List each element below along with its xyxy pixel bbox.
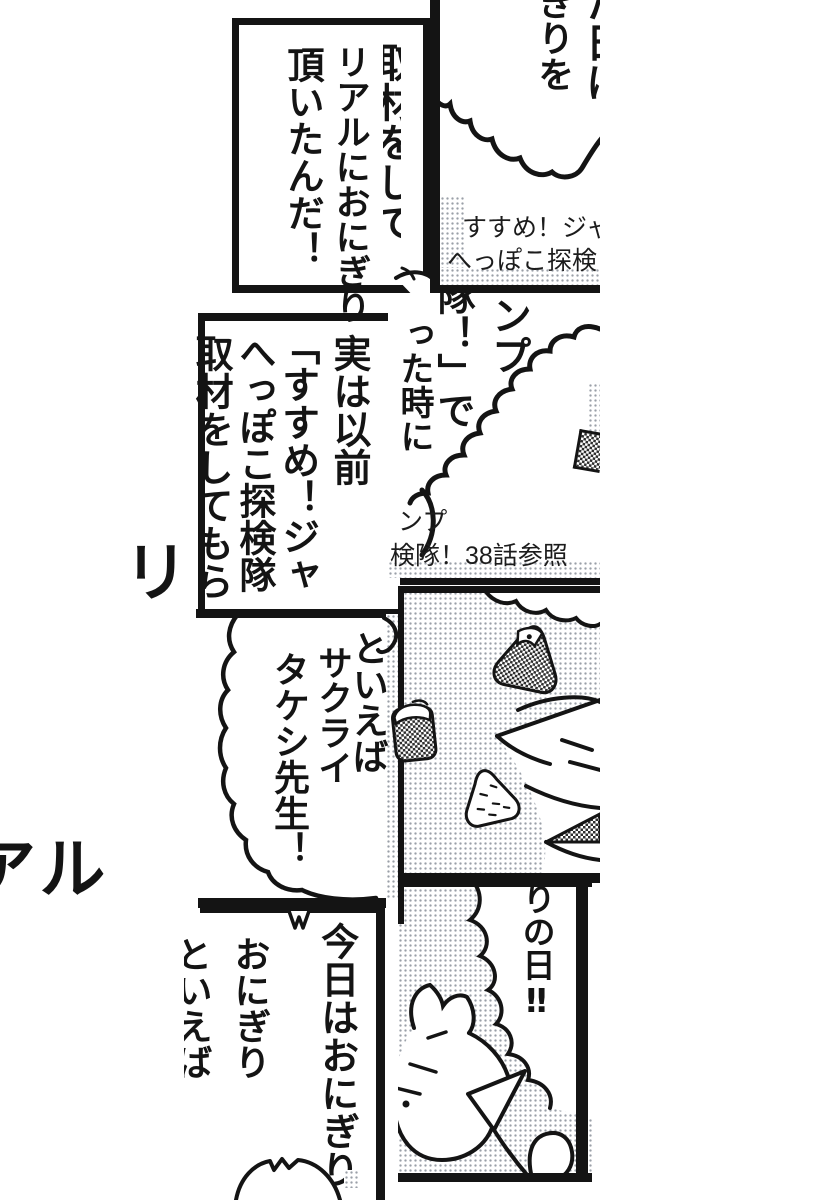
- onigiri-roll-icon: [386, 698, 440, 766]
- speech-column: へっぽこ探検隊: [234, 334, 273, 593]
- halftone-patch: [344, 1170, 360, 1188]
- panel-mid-right: ンプ 隊！」で った時に ンプ 検隊！38話参照: [388, 293, 600, 585]
- speech-column: 頂いたんだ！: [284, 46, 321, 268]
- speech-column: 実は以前: [330, 334, 368, 486]
- speech-column: といえば: [348, 630, 386, 774]
- panel-bottom-right: りの日‼: [398, 878, 592, 1182]
- background-title-fragment-bottom: アル: [0, 816, 109, 912]
- panel-onigiri-border-top: [398, 586, 600, 593]
- panel-bottom-right-border-left-stub: [398, 878, 404, 924]
- panel-bottom-right-border-top: [398, 878, 592, 887]
- speech-column: た日に: [573, 0, 600, 102]
- panel-top-left-border-left: [232, 18, 239, 293]
- speech-column: タケシ先生！: [270, 651, 306, 867]
- speech-column: 「すすめ！ジャ: [278, 327, 317, 593]
- onigiri-sesame-icon: [457, 765, 521, 829]
- manga-page: リ アル 取材をして リアルにおにぎり 頂いたんだ！ ぎりを た日に すすめ！ジ…: [0, 0, 820, 1200]
- clipped-speech-column: た日に: [571, 0, 600, 190]
- panel-bottom-right-border-right: [576, 878, 588, 1182]
- speech-column: ぎりを: [534, 0, 569, 92]
- speech-column: 隊！」で: [437, 293, 468, 429]
- panel-top-left-border-top: [232, 18, 425, 25]
- bottom-right-panel-art: [398, 878, 592, 1182]
- speech-column: ンプ: [486, 295, 530, 375]
- reference-caption-line2: 検隊！38話参照: [390, 536, 568, 572]
- onigiri-dark-icon: [492, 620, 566, 695]
- clipped-speech-column: といえば: [184, 936, 213, 1096]
- reference-caption-line1: ンプ: [398, 502, 447, 538]
- clipped-speech-column: 取材をして: [383, 42, 401, 257]
- reference-caption-line2: へっぽこ探検: [447, 241, 597, 277]
- speech-column: 今日はおにぎり: [317, 922, 356, 1188]
- speech-column: リアルにおにぎり: [332, 44, 367, 324]
- panel-bottom-right-border-bottom: [398, 1173, 592, 1182]
- panel-bottom-left-border-right: [376, 905, 385, 1200]
- speech-column: りの日‼: [520, 882, 553, 1020]
- speech-column: った時に: [396, 317, 432, 453]
- speech-column: といえば: [184, 936, 209, 1080]
- panel-mid-right-border-bottom: [400, 578, 600, 585]
- speech-column: サクライ: [314, 645, 349, 785]
- speech-column: 取材をして: [383, 42, 401, 242]
- background-title-fragment-top: リ: [124, 522, 188, 614]
- panel-top-right-border-bottom: [430, 285, 600, 293]
- mascot-head-drawing: [497, 697, 600, 878]
- bubble-tail-icon: [288, 911, 310, 931]
- reference-caption-line1: すすめ！ジャ: [462, 208, 600, 244]
- speech-column: 取材をしてもら: [191, 334, 230, 600]
- panel-top-right: ぎりを た日に すすめ！ジャ へっぽこ探検: [430, 0, 600, 293]
- panel-top-right-border-left: [430, 0, 440, 293]
- speech-column: おにぎり: [230, 936, 267, 1080]
